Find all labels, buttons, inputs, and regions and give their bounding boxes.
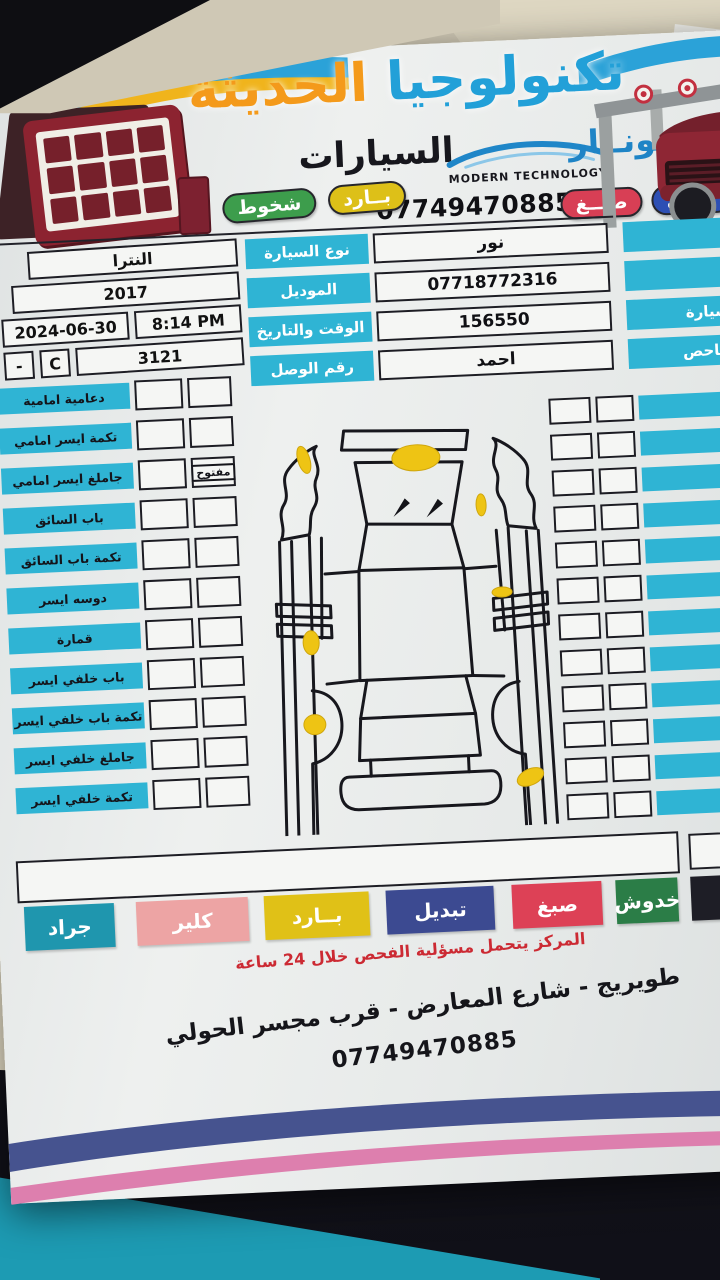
receipt-dash-value: - (3, 351, 35, 381)
condition-checkbox (560, 649, 603, 677)
condition-checkbox (136, 418, 185, 450)
diagnostic-machine-image (0, 90, 212, 251)
condition-checkbox (187, 376, 232, 408)
checklist-part-label: خلفي ايمن (651, 674, 720, 707)
checklist-left-column: دعامية امامية تكمة ايسر امامي جاملغ ايسر… (0, 375, 267, 826)
condition-checkbox (194, 536, 239, 568)
condition-checkbox (612, 755, 651, 783)
condition-checkbox (595, 395, 634, 423)
legend-color-box: كلير (136, 897, 250, 946)
condition-checkbox (196, 576, 241, 608)
time-value: 8:14 PM (134, 304, 242, 339)
condition-checkbox (138, 458, 187, 490)
checklist-part-label: تكمة خلفي ايسر (15, 782, 148, 814)
checklist-row: سه ايمن (556, 566, 720, 605)
customer-info-value: 156550 (376, 301, 612, 342)
inspection-form-paper: تكنولوجيا الحديثة السيارات MODERN TECHNO… (0, 26, 720, 1204)
condition-checkbox (192, 496, 237, 528)
checklist-row: تكمة خلفي ايسر (15, 775, 266, 816)
legend-color-box: جراد (24, 903, 116, 951)
checklist-row: ايمن امامي (550, 422, 720, 461)
customer-info-label: الهاتف (624, 254, 720, 291)
condition-checkbox (189, 416, 234, 448)
model-label: الموديل (247, 273, 371, 309)
customer-info-label: الاسم (622, 215, 720, 252)
condition-checkbox (556, 577, 599, 605)
condition-checkbox (602, 539, 641, 567)
condition-checkbox (140, 498, 189, 530)
condition-checkbox (141, 538, 190, 570)
condition-checkbox (610, 719, 649, 747)
condition-checkbox (205, 776, 250, 808)
checklist-part-label: تكمة باب السائق (5, 543, 138, 575)
condition-checkbox (203, 736, 248, 768)
checklist-row: دوسه ايسر (6, 575, 257, 616)
checklist-part-label: دوسه ايسر (6, 583, 139, 615)
checklist-part-label: نطة (655, 746, 720, 779)
date-value: 2024-06-30 (1, 312, 130, 348)
condition-checkbox (607, 647, 646, 675)
condition-checkbox (150, 738, 199, 770)
condition-checkbox (134, 378, 183, 410)
checklist-part-label: جاملغ ايسر امامي (1, 463, 134, 495)
condition-checkbox (555, 541, 598, 569)
condition-checkbox (552, 469, 595, 497)
car-type-label: نوع السيارة (245, 234, 369, 270)
checklist-row: لفي ايمن (563, 709, 720, 748)
condition-checkbox (599, 467, 638, 495)
condition-checkbox (152, 778, 201, 810)
datetime-label: الوقت والتاريخ (248, 312, 372, 348)
customer-info-label: رقم السيارة (626, 293, 720, 330)
machine-accessory (177, 176, 212, 235)
condition-checkbox (597, 431, 636, 459)
checklist-row: تكمة باب السائق (4, 535, 255, 576)
legend-color-box: ضرب (690, 872, 720, 921)
condition-checkbox (563, 720, 606, 748)
condition-checkbox (550, 433, 593, 461)
checklist-row: ايمن امامي (552, 458, 720, 497)
service-badge: شخوط (221, 187, 317, 224)
checklist-row: جاملغ ايسر امامي مفتوح (1, 455, 252, 496)
condition-checkbox (200, 656, 245, 688)
receipt-number-value: 3121 (75, 337, 244, 376)
checklist-row: الصدر (553, 494, 720, 533)
checklist-row: نطة (565, 745, 720, 784)
customer-info-value: نور (373, 223, 609, 264)
condition-checkbox (605, 611, 644, 639)
customer-info-labels: الاسمالهاتفرقم السيارةاسم الفاحص (622, 215, 720, 378)
customer-info-value: احمد (378, 340, 614, 381)
checklist-row: لف الصدر (558, 601, 720, 640)
condition-checkbox (553, 505, 596, 533)
machine-screen (35, 117, 180, 232)
condition-checkbox: مفتوح (191, 456, 236, 488)
customer-info-values: نور07718772316156550احمد (373, 223, 615, 389)
checklist-row: جاملغ خلفي ايسر (14, 735, 265, 776)
checklist-part-label: جاملغ خلفي ايسر (14, 742, 147, 774)
condition-checkbox (198, 616, 243, 648)
checklist-part-label: ايمن امامي (642, 459, 720, 492)
service-badge: بــارد (327, 180, 407, 216)
checklist-row: خلفي ايمن (560, 637, 720, 676)
condition-checkbox (561, 685, 604, 713)
checklist-part-label: سه ايمن (646, 567, 720, 600)
condition-checkbox (143, 578, 192, 610)
checklist-part-label: باب خلفي ايسر (10, 662, 143, 694)
wiper-marks (393, 497, 444, 519)
checklist-part-label: دعامية امامية (0, 383, 130, 415)
condition-checkbox (558, 613, 601, 641)
checklist-part-label: ايمن امامي (640, 423, 720, 456)
checklist-row: خلفية (566, 781, 720, 820)
checklist-row: تكمة ايسر امامي (0, 415, 250, 456)
checklist-part-label: تكمة ايسر امامي (0, 423, 132, 455)
photo-scene: تكنولوجيا الحديثة السيارات MODERN TECHNO… (0, 0, 720, 1280)
checklist-part-label: باب السائق (3, 503, 136, 535)
legend-color-box: خدوش (615, 877, 679, 924)
checklist-right-column: بنيد ايمن امامي ايمن امامي ال (548, 386, 720, 831)
checklist-part-label: الصدر (643, 495, 720, 528)
checklist-row: تكمة باب خلفي ايسر (12, 695, 263, 736)
checklist-row: باب الصدر (555, 530, 720, 569)
open-note-tag: مفتوح (191, 463, 236, 482)
condition-checkbox (603, 575, 642, 603)
checklist-part-label: بنيد (638, 387, 720, 420)
notes-label: ملاحظات (688, 826, 720, 870)
condition-checkbox (600, 503, 639, 531)
title-word-blue: تكنولوجيا (385, 41, 626, 113)
customer-info-value: 07718772316 (374, 262, 610, 303)
checklist-part-label: خلفية (656, 782, 720, 815)
customer-info-label: اسم الفاحص (628, 332, 720, 369)
condition-checkbox (149, 698, 198, 730)
vehicle-info-mid-labels: نوع السيارة الموديل الوقت والتاريخ رقم ا… (245, 234, 375, 395)
condition-checkbox (613, 790, 652, 818)
checklist-part-label: باب الصدر (645, 531, 720, 564)
condition-checkbox (565, 756, 608, 784)
checklist-row: باب السائق (3, 495, 254, 536)
condition-checkbox (566, 792, 609, 820)
condition-checkbox (202, 696, 247, 728)
checklist-row: قمارة (8, 615, 259, 656)
legend-color-box: تبديل (385, 886, 495, 935)
condition-checkbox (147, 658, 196, 690)
condition-checkbox (608, 683, 647, 711)
legend-color-box: صبغ (511, 881, 603, 929)
checklist-row: خلفي ايمن (561, 673, 720, 712)
machine-tablet (22, 104, 193, 247)
checklist-part-label: قمارة (8, 622, 141, 654)
footer-band-decoration (7, 1071, 720, 1205)
condition-checkbox (145, 618, 194, 650)
receipt-letter-value: C (39, 348, 71, 378)
car-top-view-diagram (261, 414, 564, 837)
checklist-part-label: تكمة باب خلفي ايسر (12, 702, 145, 734)
checklist-row: باب خلفي ايسر (10, 655, 261, 696)
vehicle-info-left-column: النترا 2017 2024-06-30 8:14 PM - C 3121 (0, 238, 245, 385)
checklist-part-label: خلفي ايمن (650, 638, 720, 671)
receipt-label: رقم الوصل (250, 351, 374, 387)
suv-scanner-image (591, 68, 720, 238)
legend-color-box: بــارد (264, 891, 371, 940)
checklist-part-label: لفي ايمن (653, 710, 720, 743)
condition-checkbox (548, 397, 591, 425)
checklist-part-label: لف الصدر (648, 602, 720, 635)
checklist-row: بنيد (548, 386, 720, 425)
